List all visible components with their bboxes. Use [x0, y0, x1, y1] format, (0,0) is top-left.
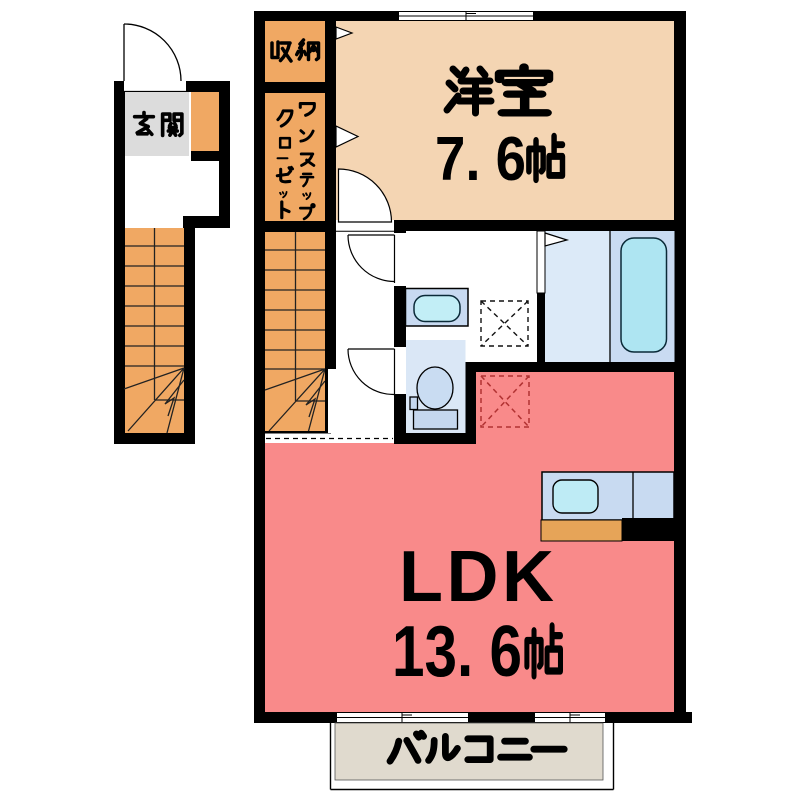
svg-text:LDK: LDK — [399, 537, 554, 617]
svg-text:7. 6: 7. 6 — [435, 125, 526, 194]
svg-text:13. 6: 13. 6 — [392, 612, 522, 692]
